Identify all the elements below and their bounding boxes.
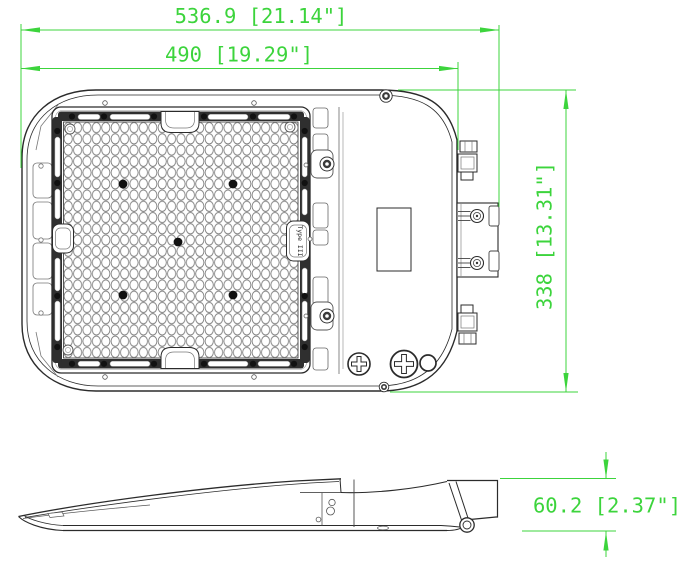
optic-type-tab: Type III [287,221,310,261]
dim-body-length: 490 [19.29"] [165,43,313,67]
torx-screw-top [380,90,392,102]
vent-ribs [313,108,328,370]
clamp-bottom [458,305,477,344]
top-view: Type III [22,90,499,392]
latch-screw-top [320,157,334,171]
bracket-body [457,203,499,277]
side-view [19,479,498,532]
drawing-svg: Type III [0,0,686,566]
torx-screw-bottom [379,382,389,392]
photocell-port [420,355,436,371]
mounting-bracket [457,141,499,344]
pivot-bolt [460,518,474,532]
cross-bolt-large [391,351,418,378]
side-profile [19,479,464,531]
dim-side-height: 60.2 [2.37"] [533,494,681,518]
clamp-top [458,141,477,180]
dim-body-height: 338 [13.31"] [533,162,557,310]
dim-overall-length: 536.9 [21.14"] [175,4,348,28]
optic-type-label: Type III [296,225,304,256]
driver-label-plate [377,208,411,271]
led-panel: Type III [52,107,310,373]
clamp-bolt [471,210,484,223]
cross-bolt-small [348,353,370,375]
clamp-bolt [471,257,484,270]
latch-screw-bottom [320,309,334,323]
luminaire-dimension-drawing: Type III [0,0,686,566]
mounting-arm [447,481,498,533]
driver-compartment [304,90,436,392]
